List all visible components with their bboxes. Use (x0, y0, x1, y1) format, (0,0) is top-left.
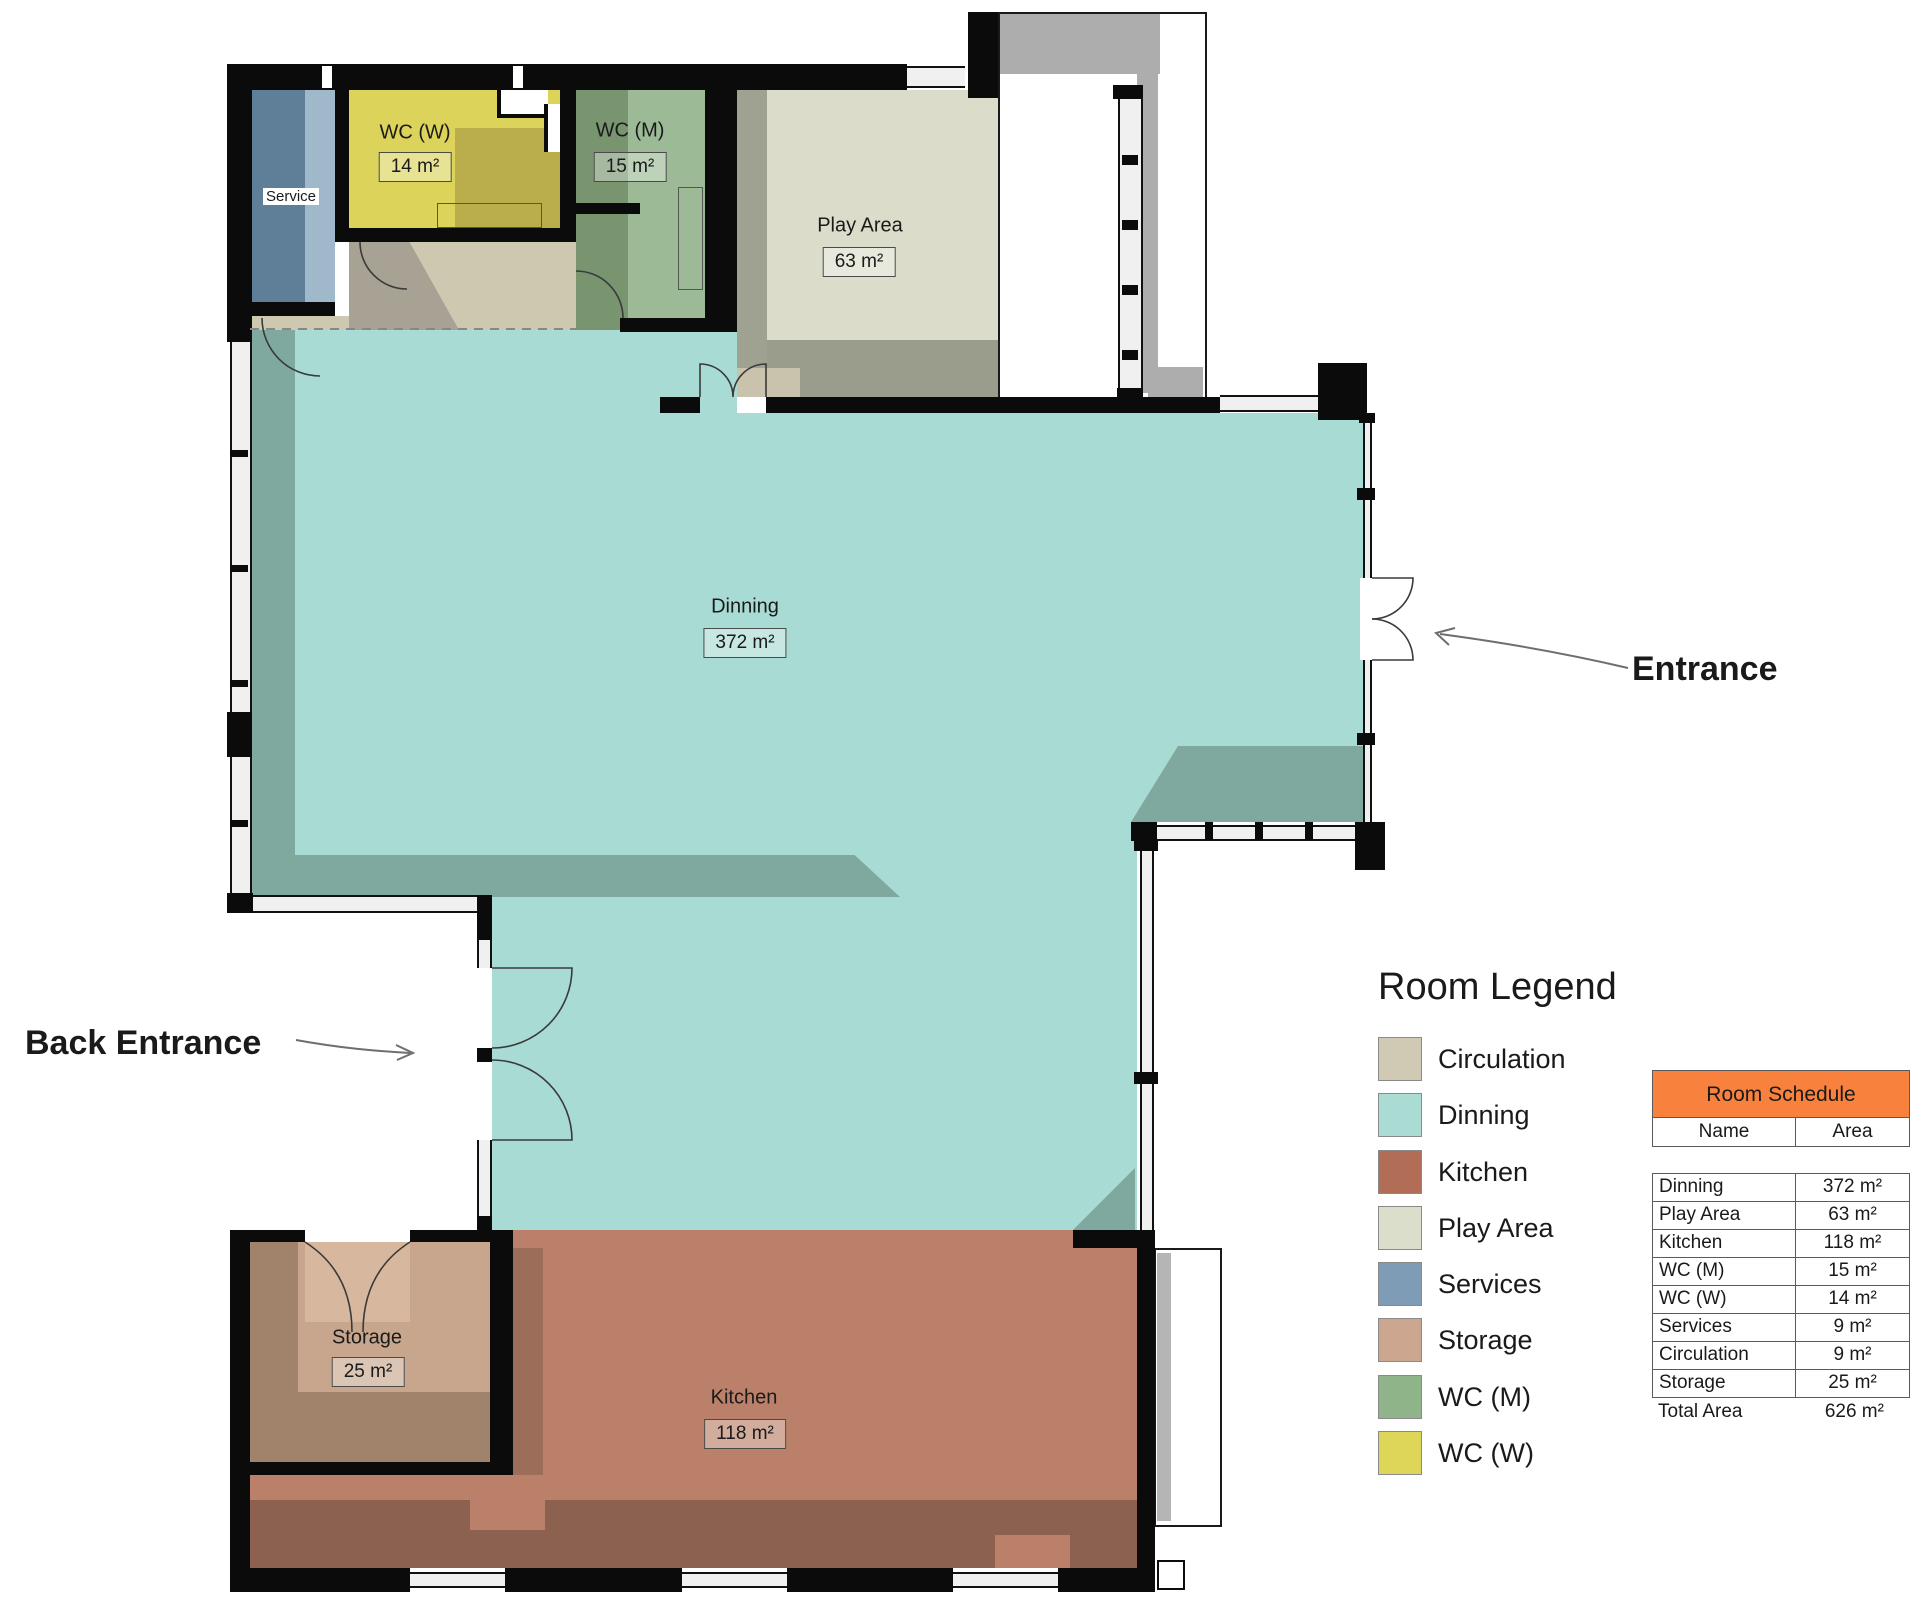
row-area: 372 m² (1796, 1174, 1909, 1201)
table-row: Dinning 372 m² (1653, 1174, 1909, 1202)
row-area: 118 m² (1796, 1230, 1909, 1257)
door-arcs (262, 242, 1413, 1332)
plan-linework (0, 0, 1920, 1605)
service-label-text: Service (266, 188, 316, 205)
wcw-label: WC (W) (379, 122, 450, 145)
back-entrance-annotation: Back Entrance (25, 1024, 261, 1063)
wcw-door-arc (360, 242, 407, 289)
legend-label: Dinning (1438, 1093, 1530, 1137)
entrance-arrow (1440, 634, 1628, 668)
row-name: Services (1653, 1314, 1796, 1341)
schedule-col-name: Name (1653, 1118, 1796, 1146)
wcm-label: WC (M) (596, 120, 665, 143)
service-label: Service (263, 188, 319, 205)
table-row: WC (W) 14 m² (1653, 1286, 1909, 1314)
entrance-door-1 (1372, 578, 1413, 619)
legend-swatch-storage (1378, 1318, 1422, 1362)
entrance-annotation: Entrance (1632, 650, 1778, 689)
entrance-door-2 (1372, 619, 1413, 660)
play-label: Play Area (817, 215, 903, 238)
row-name: WC (M) (1653, 1258, 1796, 1285)
row-name: Dinning (1653, 1174, 1796, 1201)
dinning-label: Dinning (711, 596, 779, 619)
row-name: Play Area (1653, 1202, 1796, 1229)
total-label: Total Area (1652, 1398, 1799, 1426)
legend-swatch-play-area (1378, 1206, 1422, 1250)
row-area: 9 m² (1796, 1342, 1909, 1369)
legend-swatch-wc-m (1378, 1375, 1422, 1419)
schedule-col-area: Area (1796, 1118, 1909, 1146)
row-name: Circulation (1653, 1342, 1796, 1369)
legend-title: Room Legend (1378, 966, 1617, 1009)
legend-label: Services (1438, 1262, 1542, 1306)
play-area-value: 63 m² (823, 247, 896, 277)
legend-label: Play Area (1438, 1206, 1554, 1250)
row-name: Kitchen (1653, 1230, 1796, 1257)
storage-label: Storage (332, 1327, 402, 1350)
floor-plan-canvas: Service WC (W) 14 m² WC (M) 15 m² Play A… (0, 0, 1920, 1605)
service-door-arc (262, 318, 320, 376)
kitchen-label: Kitchen (711, 1387, 778, 1410)
legend-swatch-wc-w (1378, 1431, 1422, 1475)
wcm-door-arc (576, 271, 623, 318)
play-double-door (700, 364, 766, 397)
table-row: Storage 25 m² (1653, 1370, 1909, 1397)
table-row: WC (M) 15 m² (1653, 1258, 1909, 1286)
dinning-area: 372 m² (703, 628, 786, 658)
row-area: 15 m² (1796, 1258, 1909, 1285)
storage-area: 25 m² (332, 1357, 405, 1387)
table-row: Services 9 m² (1653, 1314, 1909, 1342)
row-area: 9 m² (1796, 1314, 1909, 1341)
row-area: 14 m² (1796, 1286, 1909, 1313)
wcw-area: 14 m² (379, 152, 452, 182)
table-row: Kitchen 118 m² (1653, 1230, 1909, 1258)
legend-swatch-circulation (1378, 1037, 1422, 1081)
row-area: 63 m² (1796, 1202, 1909, 1229)
back-door-2 (492, 1060, 572, 1140)
schedule-title: Room Schedule (1652, 1070, 1910, 1118)
schedule-total-row: Total Area 626 m² (1652, 1398, 1910, 1426)
legend-swatch-dinning (1378, 1093, 1422, 1137)
total-value: 626 m² (1799, 1398, 1910, 1426)
legend-label: Circulation (1438, 1037, 1566, 1081)
row-area: 25 m² (1796, 1370, 1909, 1397)
back-entrance-arrow (296, 1040, 410, 1053)
wcm-area: 15 m² (594, 152, 667, 182)
row-name: Storage (1653, 1370, 1796, 1397)
legend-label: WC (M) (1438, 1375, 1531, 1419)
legend-label: Storage (1438, 1318, 1533, 1362)
row-name: WC (W) (1653, 1286, 1796, 1313)
schedule-body: Dinning 372 m² Play Area 63 m² Kitchen 1… (1652, 1173, 1910, 1398)
legend-label: Kitchen (1438, 1150, 1528, 1194)
storage-double-door (305, 1242, 410, 1332)
back-door-1 (492, 968, 572, 1048)
legend-swatch-services (1378, 1262, 1422, 1306)
table-row: Circulation 9 m² (1653, 1342, 1909, 1370)
schedule-columns: Name Area (1652, 1118, 1910, 1147)
kitchen-area: 118 m² (704, 1419, 786, 1449)
legend-label: WC (W) (1438, 1431, 1534, 1475)
room-schedule-table: Room Schedule Name Area Dinning 372 m² P… (1652, 1070, 1910, 1426)
legend-swatch-kitchen (1378, 1150, 1422, 1194)
table-row: Play Area 63 m² (1653, 1202, 1909, 1230)
